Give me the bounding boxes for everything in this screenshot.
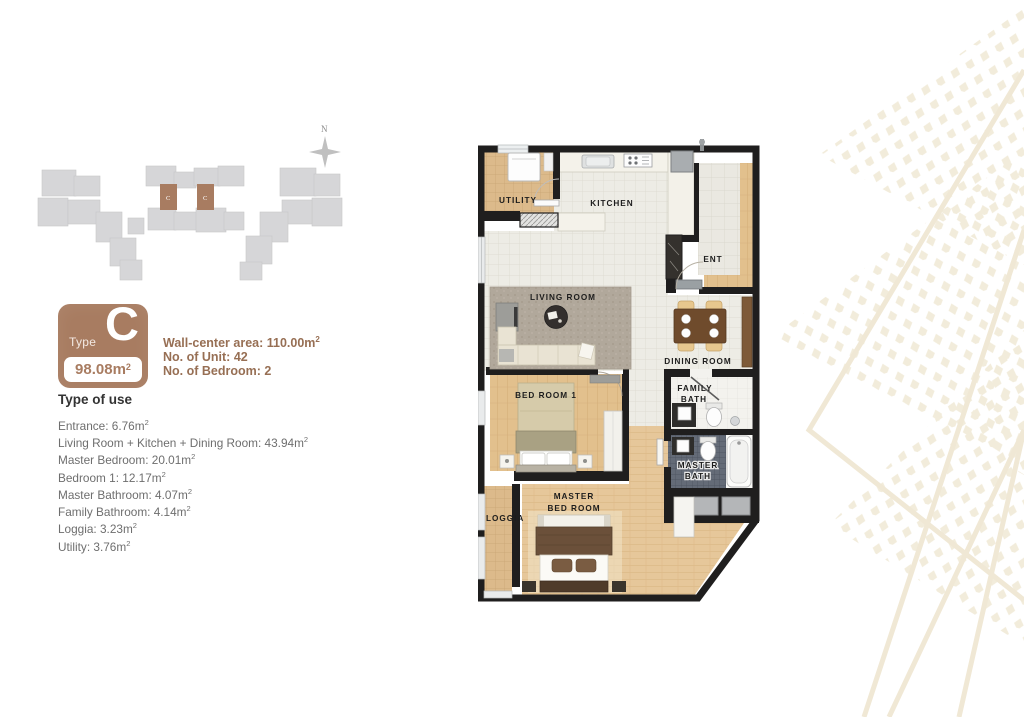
console (742, 297, 752, 367)
type-word: Type (69, 335, 96, 349)
ac-unit-icon (694, 497, 718, 515)
dining-table (674, 309, 726, 343)
label-living-room: LIVING ROOM (530, 293, 596, 302)
shower-head-icon (731, 417, 740, 426)
ac-unit-icon (722, 497, 750, 515)
label-family-bath: FAMILY (677, 384, 712, 393)
unit-c-marker: C (166, 195, 170, 202)
nightstand (522, 581, 536, 592)
dresser (590, 375, 620, 383)
list-item: Loggia: 3.23m2 (58, 519, 378, 536)
washer-icon (508, 153, 540, 181)
info-line: No. of Unit: 42 (163, 351, 320, 365)
headboard (516, 465, 576, 472)
label-utility: UTILITY (499, 196, 537, 205)
pillow (522, 453, 545, 465)
entrance-door (676, 280, 702, 289)
unit-type-badge: Type C 98.08m2 (58, 304, 148, 388)
info-text: Wall-center area: 110.00m (163, 336, 315, 350)
compass: N (309, 124, 341, 168)
list-item: Master Bathroom: 4.07m2 (58, 485, 378, 502)
label-family-bath: BATH (681, 395, 707, 404)
pillow (576, 559, 596, 572)
bed1-blanket (516, 431, 576, 453)
label-master-bath: BATH (685, 472, 711, 481)
pillow (552, 559, 572, 572)
label-master-bedroom: BED ROOM (547, 504, 600, 513)
ac-unit-icon (671, 151, 693, 172)
pillow (547, 453, 570, 465)
label-loggia: LOGGIA (486, 514, 524, 523)
master-bath-door (657, 439, 663, 465)
headboard (538, 515, 610, 527)
list-item: Family Bathroom: 4.14m2 (58, 502, 378, 519)
list-item: Entrance: 6.76m2 (58, 416, 378, 433)
building-footprints (38, 166, 342, 280)
list-item: Bedroom 1: 12.17m2 (58, 468, 378, 485)
compass-north-label: N (321, 124, 328, 134)
info-text: No. of Bedroom: 2 (163, 364, 271, 378)
type-of-use-heading: Type of use (58, 392, 378, 407)
list-item: Living Room + Kitchen + Dining Room: 43.… (58, 433, 378, 450)
compass-star-icon (309, 136, 341, 168)
type-of-use: Type of use Entrance: 6.76m2 Living Room… (58, 392, 378, 554)
toilet-icon (707, 408, 722, 427)
floor-plan: UTILITY KITCHEN ENT LIVING ROOM DINING R… (478, 139, 762, 605)
site-plan: N C C (8, 112, 348, 287)
closet (674, 497, 694, 537)
unit-area-sup: 2 (126, 362, 131, 372)
info-sup: 2 (315, 335, 319, 344)
unit-info: Wall-center area: 110.00m2 No. of Unit: … (163, 333, 320, 379)
throw-cushion (499, 349, 514, 362)
floor-plan-page: N C C Type C (0, 0, 1024, 717)
info-text: No. of Unit: 42 (163, 350, 248, 364)
bed-blanket (536, 527, 612, 555)
nightstand (612, 581, 626, 592)
label-dining-room: DINING ROOM (664, 357, 731, 366)
utility-door (534, 200, 559, 206)
unit-c-marker: C (203, 195, 207, 202)
list-item: Master Bedroom: 20.01m2 (58, 450, 378, 467)
list-item: Utility: 3.76m2 (58, 537, 378, 554)
toilet-icon (701, 442, 716, 461)
info-line: Wall-center area: 110.00m2 (163, 333, 320, 351)
type-of-use-list: Entrance: 6.76m2 Living Room + Kitchen +… (58, 416, 378, 554)
label-ent: ENT (703, 255, 722, 264)
unit-area-value: 98.08m (75, 361, 126, 378)
bench (540, 581, 608, 592)
label-master-bedroom: MASTER (554, 492, 595, 501)
label-kitchen: KITCHEN (590, 199, 633, 208)
label-bedroom1: BED ROOM 1 (515, 391, 577, 400)
type-letter: C (105, 300, 139, 347)
unit-area-box: 98.08m2 (64, 357, 142, 382)
info-line: No. of Bedroom: 2 (163, 365, 320, 379)
bed-duvet (540, 555, 608, 581)
label-master-bath: MASTER (678, 461, 719, 470)
